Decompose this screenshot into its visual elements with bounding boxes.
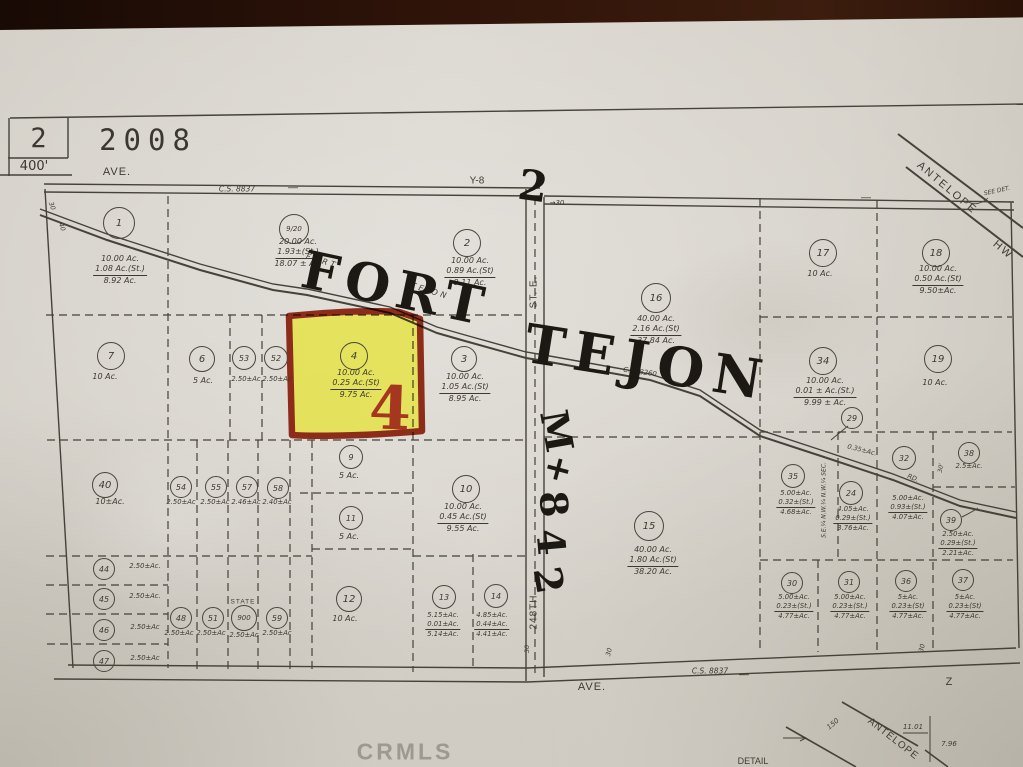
parcel-number-35: 35: [781, 464, 805, 488]
map-scale: 400': [4, 158, 64, 174]
parcel-number-57: 57: [236, 476, 258, 498]
parcel-acreage-1: 10.00 Ac.1.08 Ac.(St.)8.92 Ac.: [93, 254, 147, 286]
parcel-number-17: 17: [809, 239, 837, 267]
parcel-number-52: 52: [264, 346, 288, 370]
parcel-number-45: 45: [93, 588, 115, 610]
parcel-number-44: 44: [93, 558, 115, 580]
parcel-acreage-31: 5.00±Ac.0.23±(St.)4.77±Ac.: [830, 593, 869, 620]
parcel-number-39: 39: [940, 509, 962, 531]
parcel-number-58: 58: [267, 477, 289, 499]
survey-number-top: C.S. 8837: [219, 185, 255, 194]
map-label: 11.01: [903, 723, 923, 731]
parcel-number-11: 11: [339, 506, 363, 530]
parcel-number-2: 2: [453, 229, 481, 257]
parcel-acreage-15: 40.00 Ac.1.80 Ac.(St)38.20 Ac.: [627, 545, 678, 577]
parcel-acreage-55: 2.50±Ac: [200, 498, 229, 507]
parcel-acreage-40: 10±Ac.: [95, 497, 124, 507]
parcel-acreage-32: 5.00±Ac.0.93±(St.)4.07±Ac.: [888, 494, 927, 521]
parcel-acreage-53: 2.50±Ac: [231, 375, 260, 384]
parcel-number-18: 18: [922, 239, 950, 267]
parcel-acreage-59: 2.50±Ac: [262, 629, 291, 638]
parcel-number-16: 16: [641, 283, 671, 313]
parcel-acreage-12: 10 Ac.: [332, 614, 357, 624]
parcel-number-3: 3: [451, 346, 477, 372]
detail-caption: DETAIL: [738, 756, 769, 766]
parcel-acreage-39: 2.50±Ac.0.29±(St.)2.21±Ac.: [938, 530, 977, 557]
parcel-number-47: 47: [93, 650, 115, 672]
street-248th-label: 248TH: [529, 594, 540, 629]
parcel-number-7: 7: [97, 342, 125, 370]
parcel-number-14: 14: [484, 584, 508, 608]
parcel-number-12: 12: [336, 586, 362, 612]
parcel-number-36: 36: [895, 570, 917, 592]
parcel-acreage-35: 5.00±Ac.0.32±(St.)4.68±Ac.: [776, 489, 815, 516]
parcel-acreage-58: 2.40±Ac: [262, 498, 291, 507]
grid-ref-y8: Y-8: [470, 176, 485, 187]
map-label: —: [861, 193, 871, 204]
map-linework: [0, 0, 1023, 767]
handwritten-vertical-8: 8: [530, 489, 577, 519]
map-year: 2008: [88, 122, 208, 158]
parcel-number-55: 55: [205, 476, 227, 498]
parcel-number-4: 4: [340, 342, 368, 370]
parcel-acreage-52: 2.50±Ac: [262, 375, 291, 384]
parcel-acreage-44: 2.50±Ac.: [129, 562, 160, 571]
parcel-number-34: 34: [809, 347, 837, 375]
map-label: 7.96: [941, 740, 957, 748]
sheet-number: 2: [9, 118, 68, 158]
parcel-acreage-7: 10 Ac.: [92, 372, 117, 382]
parcel-number-53: 53: [232, 346, 256, 370]
parcel-acreage-14: 4.85±Ac.0.44±Ac.4.41±Ac.: [474, 611, 509, 638]
map-label: —: [288, 183, 298, 194]
parcel-acreage-13: 5.15±Ac.0.01±Ac.5.14±Ac.: [425, 611, 460, 638]
ave-top-label: AVE.: [103, 166, 131, 178]
parcel-number-15: 15: [634, 511, 664, 541]
parcel-acreage-19: 10 Ac.: [922, 378, 947, 388]
parcel-number-24: 24: [839, 481, 863, 505]
survey-number-bottom: C.S. 8837: [692, 667, 728, 676]
parcel-acreage-54: 2.50±Ac: [166, 498, 195, 507]
street-st-e-label: ST. E.: [529, 276, 540, 309]
watermark: CRMLS: [357, 739, 454, 766]
parcel-acreage-900: 2.50±Ac: [229, 631, 258, 640]
parcel-acreage-24: 4.05±Ac.0.29±(St.)3.76±Ac.: [833, 505, 872, 532]
parcel-number-6: 6: [189, 346, 215, 372]
parcel-acreage-6: 5 Ac.: [193, 376, 213, 386]
parcel-number-54: 54: [170, 476, 192, 498]
parcel-acreage-46: 2.50±Ac: [130, 623, 159, 632]
parcel-number-9: 9: [339, 445, 363, 469]
parcel-number-30: 30: [781, 572, 803, 594]
parcel-acreage-48: 2.50±Ac: [164, 629, 193, 638]
parcel-acreage-10: 10.00 Ac.0.45 Ac.(St)9.55 Ac.: [437, 502, 488, 534]
parcel-4-highlight-number: 4: [368, 373, 412, 444]
map-label: S.E.¼ N.W.¼ N.W.¼ SEC.: [821, 462, 828, 538]
parcel-number-1: 1: [103, 207, 135, 239]
parcel-number-13: 13: [432, 585, 456, 609]
parcel-acreage-57: 2.46±Ac: [231, 498, 260, 507]
parcel-acreage-36: 5±Ac.0.23±(St)4.77±Ac.: [889, 593, 926, 620]
parcel-acreage-11: 5 Ac.: [339, 532, 359, 542]
parcel-acreage-37: 5±Ac.0.23±(St)4.77±Ac.: [946, 593, 983, 620]
parcel-acreage-9: 5 Ac.: [339, 471, 359, 481]
parcel-acreage-45: 2.50±Ac.: [129, 592, 160, 601]
map-label: →30: [550, 199, 565, 207]
parcel-acreage-34: 10.00 Ac.0.01 ± Ac.(St.)9.99 ± Ac.: [793, 376, 856, 408]
parcel-number-29: 29: [841, 407, 863, 429]
parcel-number-900: 900: [231, 605, 257, 631]
parcel-number-51: 51: [202, 607, 224, 629]
parcel-number-31: 31: [838, 571, 860, 593]
parcel-number-38: 38: [958, 442, 980, 464]
parcel-acreage-30: 5.00±Ac.0.23±(St.)4.77±Ac.: [774, 593, 813, 620]
map-label: —: [739, 670, 749, 681]
parcel-acreage-51: 2.50±Ac: [196, 629, 225, 638]
parcel-number-46: 46: [93, 619, 115, 641]
handwritten-vertical-4: 4: [527, 527, 574, 557]
parcel-number-32: 32: [892, 446, 916, 470]
parcel-number-19: 19: [924, 345, 952, 373]
ave-bottom-label: AVE.: [578, 681, 606, 693]
parcel-number-40: 40: [92, 472, 118, 498]
grid-ref-z: Z: [946, 676, 953, 688]
parcel-number-59: 59: [266, 607, 288, 629]
parcel-number-10: 10: [452, 475, 480, 503]
parcel-acreage-18: 10.00 Ac.0.50 Ac.(St)9.50±Ac.: [912, 264, 963, 296]
parcel-acreage-17: 10 Ac.: [807, 269, 832, 279]
parcel-acreage-47: 2.50±Ac: [130, 654, 159, 663]
parcel-number-48: 48: [170, 607, 192, 629]
parcel-number-37: 37: [952, 569, 974, 591]
parcel-acreage-3: 10.00 Ac.1.05 Ac.(St)8.95 Ac.: [439, 372, 490, 404]
map-label: 30: [523, 645, 531, 653]
parcel-acreage-38: 2.5±Ac.: [955, 462, 982, 471]
